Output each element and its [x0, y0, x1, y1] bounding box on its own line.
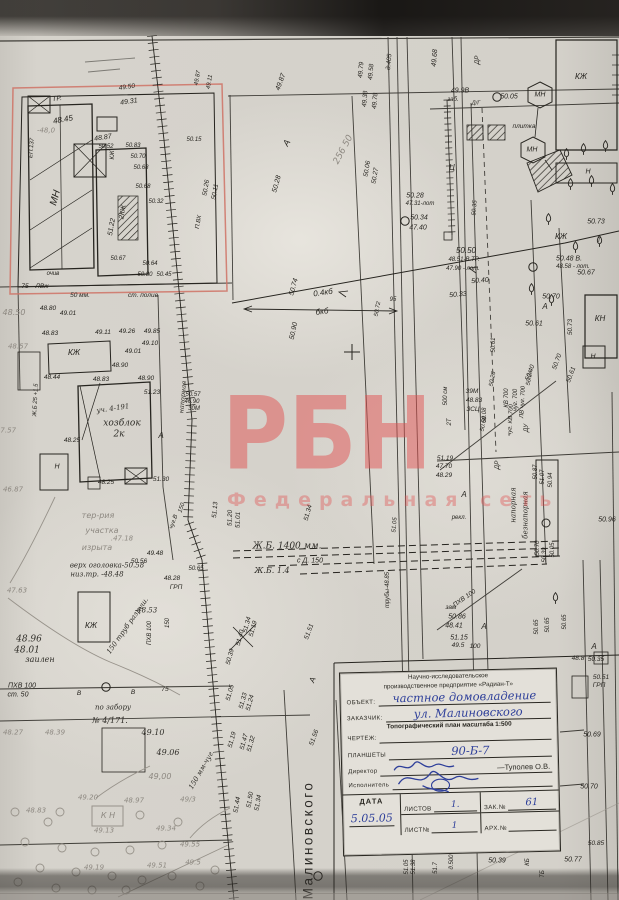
map-label: 49,00	[149, 773, 172, 781]
map-label: 50.50	[456, 247, 476, 255]
map-label: 50.70	[580, 784, 598, 791]
map-label: 39М	[466, 389, 479, 396]
map-label: 50.69	[583, 732, 601, 739]
map-label: трубы-48.85	[385, 572, 391, 608]
map-label: 47.63	[7, 588, 27, 595]
drawing-label: ЧЕРТЕЖ:	[347, 736, 377, 745]
customer-label: ЗАКАЗЧИК:	[347, 715, 383, 724]
map-label: 50.05	[550, 542, 556, 557]
tree-icon	[529, 284, 533, 295]
map-label: № 4/171.	[92, 717, 128, 725]
order-label: ЗАК.№	[484, 803, 506, 811]
map-label: А	[158, 432, 163, 440]
map-label: ст. полив	[128, 293, 158, 300]
date-label: ДАТА	[343, 797, 400, 807]
arch-value	[509, 829, 557, 831]
map-label: Н	[54, 464, 59, 471]
map-label: 50.73	[568, 319, 575, 335]
map-label: КЖ	[85, 622, 97, 630]
map-label: Ж.Б. 1.4	[254, 567, 289, 575]
map-label: 50.39	[542, 547, 548, 562]
arch-label: АРХ.№	[484, 824, 507, 832]
map-label: хозблок	[103, 420, 140, 429]
map-label: 50.94	[548, 472, 554, 487]
map-label: тер-рия	[82, 512, 115, 520]
map-label: МН	[527, 147, 538, 154]
director-label: Директор	[348, 769, 378, 778]
tree-icon	[553, 593, 557, 604]
building-kzh-mid	[48, 341, 111, 374]
map-label: 51.19	[437, 456, 453, 463]
map-label: 48.28	[164, 576, 180, 583]
map-label: 75	[21, 284, 28, 291]
map-label: с Д. 150	[297, 558, 323, 565]
map-label: 50.35	[588, 657, 604, 664]
map-label: 50.61	[525, 321, 543, 328]
map-label: 48.57	[8, 344, 28, 351]
sheet-value: 1	[432, 821, 478, 833]
map-label: 49.48	[147, 551, 163, 558]
map-label: В	[131, 690, 135, 697]
tree-icon	[589, 176, 593, 187]
map-label: 49.10	[142, 341, 158, 348]
map-label: 48.41	[445, 623, 463, 630]
tree-icon	[581, 144, 585, 155]
map-label: 50.67	[110, 256, 125, 262]
map-label: 51.20	[227, 510, 234, 526]
customer-value: ул. Малиновского	[414, 706, 523, 722]
map-label: МН	[535, 92, 546, 99]
map-label: 48.50	[3, 309, 26, 317]
map-label: 48.25	[98, 480, 114, 487]
map-label: 49.9В	[451, 88, 469, 95]
map-label: ГРП	[170, 585, 183, 592]
map-label: 50.39	[488, 858, 506, 865]
map-label: 47.31-лот	[406, 201, 435, 207]
object-value: частное домовладение	[392, 689, 536, 705]
map-label: 50.87	[533, 464, 539, 479]
map-label: 51.23	[144, 390, 160, 397]
watermark-subtext: Федеральная сеть	[227, 489, 559, 511]
executor-label: Исполнитель	[348, 782, 389, 791]
map-label: ДР	[475, 56, 482, 65]
map-label: Ц	[449, 164, 455, 172]
map-label: 2Т	[447, 418, 453, 425]
map-label: 50.70	[542, 294, 560, 301]
scan-artifact-bottom	[0, 868, 619, 894]
map-label: ГРП	[593, 683, 606, 690]
map-label: 48.8	[572, 656, 585, 663]
map-label: 50.52	[98, 144, 113, 150]
map-label: 50.65	[188, 566, 203, 572]
tree-icon	[546, 214, 550, 225]
map-label: 500 см	[443, 387, 449, 406]
map-label: КЖ	[575, 73, 587, 81]
parcel-outline-red	[10, 84, 227, 294]
map-label: 50.67	[577, 270, 595, 277]
map-label: 50.64	[142, 261, 157, 267]
map-label: ЗСЦ	[466, 407, 479, 414]
map-label: 50.68	[135, 184, 150, 190]
map-label: 48.90	[112, 363, 128, 370]
map-label: 50.45	[156, 272, 171, 278]
sheet-label: ЛИСТ№	[404, 826, 429, 834]
map-label: КН	[595, 315, 606, 323]
map-label: 50.86	[448, 614, 466, 621]
map-label: А	[591, 643, 596, 651]
map-label: 100	[470, 644, 481, 651]
map-label: 48.25	[64, 438, 80, 445]
map-label: 51.01	[235, 512, 242, 528]
map-label: 49.5	[185, 860, 201, 867]
map-label: 50.77	[564, 857, 582, 864]
map-label: 49.01	[60, 311, 76, 318]
building-kn	[585, 295, 617, 358]
plansheets-label: ПЛАНШЕТЫ	[348, 752, 386, 761]
map-label: 51.30	[153, 477, 169, 484]
map-label: 49.85	[144, 329, 160, 336]
map-label: 50.85	[588, 841, 604, 848]
map-label: 48.80	[40, 306, 56, 313]
building-kzh-bottom	[78, 592, 110, 642]
map-label: 49.13	[94, 828, 114, 835]
map-label: 50.68	[133, 165, 148, 171]
map-label: 50.34	[410, 215, 428, 222]
map-label: КЖ	[68, 349, 80, 357]
map-label: 48.90	[138, 376, 154, 383]
building-kzh-topright	[556, 40, 617, 150]
map-label: 49.5	[452, 643, 465, 650]
map-label: 50.65	[534, 619, 540, 634]
map-label: 50.70	[130, 154, 145, 160]
map-label: 50.15	[186, 137, 201, 143]
map-label: 46.87	[3, 487, 23, 494]
map-label: 47.57	[0, 428, 16, 435]
map-label: 48.83	[42, 331, 58, 338]
map-label: Ж.Б. 1400 мм.	[253, 543, 322, 552]
map-label: 150	[165, 618, 171, 628]
map-label: 95	[390, 297, 397, 303]
map-label: 48.44	[44, 375, 60, 382]
map-label: 50.80	[137, 272, 152, 278]
map-label: 30М	[188, 406, 200, 412]
map-label: 48.83	[466, 398, 482, 405]
map-label: 51.15	[450, 635, 468, 642]
map-label: 50.65	[545, 617, 551, 632]
map-label: ДР	[495, 461, 502, 470]
sheets-value: 1.	[434, 800, 478, 812]
object-label: ОБЪЕКТ:	[347, 699, 376, 708]
map-label: 48.83	[26, 808, 46, 815]
map-label: 47.70	[436, 464, 452, 471]
tree-icon	[573, 242, 577, 253]
map-label: А	[481, 623, 486, 631]
map-label: 50.96	[598, 517, 616, 524]
map-label: .47.18	[111, 536, 133, 543]
map-label: 49/3	[180, 797, 196, 804]
map-label: 49.20	[78, 795, 98, 802]
map-label: 49.34	[156, 826, 176, 833]
map-label: Н	[590, 354, 595, 361]
map-label: Т	[597, 238, 601, 244]
map-label: А	[542, 303, 547, 311]
map-label: заб.	[447, 97, 458, 103]
map-label: К Н	[101, 812, 115, 820]
map-label: 48.83	[93, 377, 109, 384]
map-label: 51.07	[540, 469, 546, 484]
map-label: КЖ	[110, 150, 116, 159]
scan-artifact-top	[0, 0, 619, 36]
map-label: 48.39	[45, 730, 65, 737]
map-label: ДУ	[524, 424, 530, 432]
map-label: Д/Г	[472, 101, 480, 107]
map-label: ЛВж	[35, 284, 48, 291]
map-label: 50.57	[185, 392, 200, 398]
tree-icon	[610, 184, 614, 195]
map-label: КБ	[525, 858, 531, 865]
map-label: 49.26	[119, 329, 135, 336]
map-label: 50.48 В.	[556, 256, 582, 263]
map-label: рекл.	[452, 515, 467, 521]
map-label: 48.97	[124, 798, 144, 805]
map-label: ПХВ 100	[8, 683, 36, 690]
date-value: 5.05.05	[349, 813, 394, 828]
map-label: ст. 50	[8, 692, 29, 699]
map-label: 75	[161, 687, 168, 694]
title-block: Научно-исследовательское производственно…	[339, 668, 561, 857]
map-label: 50.73	[587, 219, 605, 226]
map-label: -48.53	[135, 608, 157, 615]
map-label: КЖ	[555, 233, 567, 241]
map-label: 47.90 - лот.	[446, 266, 480, 272]
map-label: 50.83	[125, 143, 140, 149]
map-label: 47.40	[409, 225, 427, 232]
map-label: 49.01	[125, 349, 141, 356]
map-label: 50.32	[148, 199, 163, 205]
watermark-logo: РБН	[222, 384, 432, 485]
scan-artifact-edge	[0, 893, 619, 900]
map-label: 48.27	[3, 730, 23, 737]
grid-cross	[344, 344, 360, 360]
map-label: по забору	[95, 705, 131, 712]
map-label: Н	[585, 169, 590, 176]
map-label: очив	[47, 271, 60, 277]
sheets-label: ЛИСТОВ	[404, 805, 432, 813]
map-label: 50 мм.	[70, 293, 90, 300]
map-label: -48,0	[37, 128, 55, 135]
map-label: ПХВ 100	[147, 621, 153, 645]
signature-zone: Директор —Туполев О.В. Исполнитель	[348, 759, 553, 792]
map-label: ТР.	[52, 95, 63, 103]
map-label: изрыта	[82, 544, 112, 552]
map-label: 50.61	[491, 337, 497, 352]
plansheets-value: 90-Б-7	[451, 744, 489, 758]
map-label: плитка	[513, 124, 536, 131]
map-label: 50.05	[500, 94, 518, 101]
map-label: 50.28	[406, 193, 424, 200]
map-label: заилен	[25, 656, 54, 664]
map-label: 49.06	[157, 749, 180, 757]
map-label: 48.51-В.ТР.	[448, 257, 479, 263]
stamp-bottom-table: ДАТА 5.05.05 ЛИСТОВ 1. ЛИСТ№ 1 ЗАК.№ 61 …	[343, 789, 560, 836]
map-label: низ.тр. -48.48	[70, 572, 123, 579]
tree-icon	[568, 179, 572, 190]
map-label: В	[77, 691, 81, 698]
map-label: 50.65	[562, 614, 568, 629]
director-name: —Туполев О.В.	[495, 763, 552, 773]
map-label: 50.51	[593, 675, 609, 682]
map-label: 2к	[113, 431, 124, 440]
scanned-topographic-plan: { "watermark": { "text": "РБН", "subtext…	[0, 0, 619, 900]
order-value: 61	[508, 797, 556, 811]
map-label: 46.90	[184, 399, 199, 405]
map-label: 49.11	[95, 330, 111, 337]
map-label: 50.70	[535, 540, 541, 555]
map-label: 49.55	[180, 842, 200, 849]
map-label: 48.96	[16, 636, 42, 645]
map-label: 49.10	[142, 729, 165, 737]
map-label: 48.29	[436, 473, 452, 480]
map-label: 50.56	[131, 559, 147, 566]
